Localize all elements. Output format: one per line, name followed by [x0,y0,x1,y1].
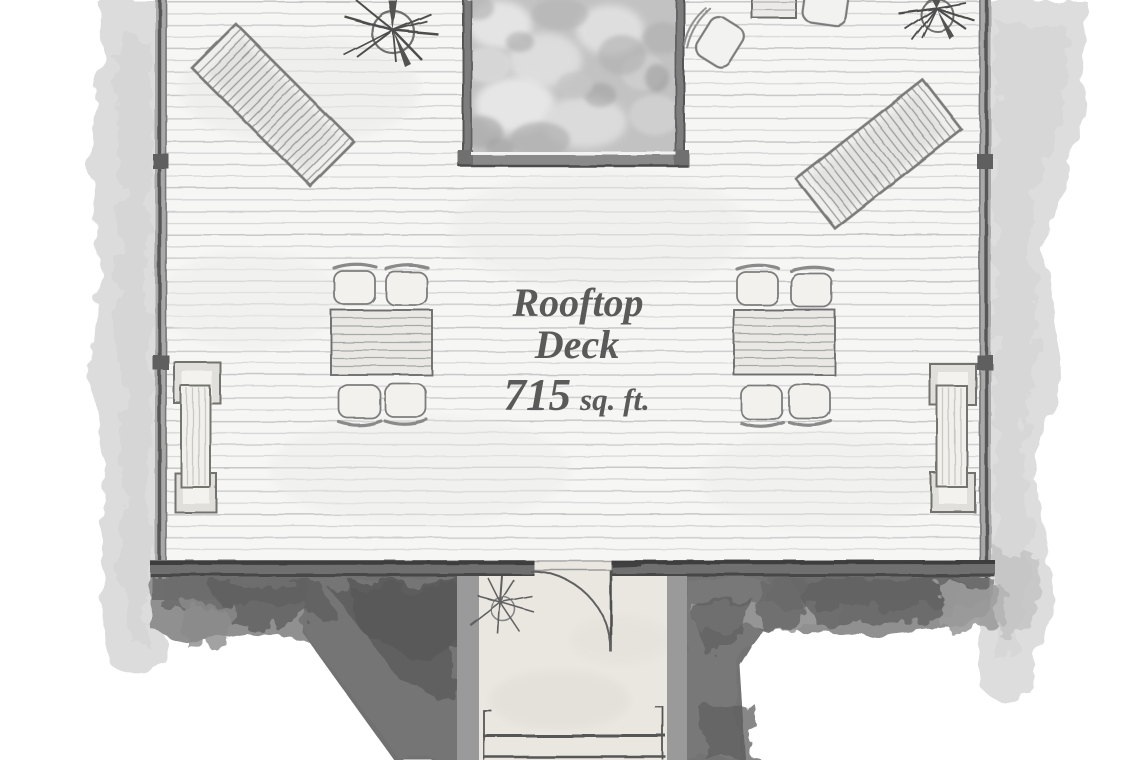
svg-text:Deck: Deck [534,322,619,367]
svg-text:sq. ft.: sq. ft. [579,382,650,417]
svg-text:715: 715 [504,370,572,420]
svg-text:Rooftop: Rooftop [511,280,643,325]
